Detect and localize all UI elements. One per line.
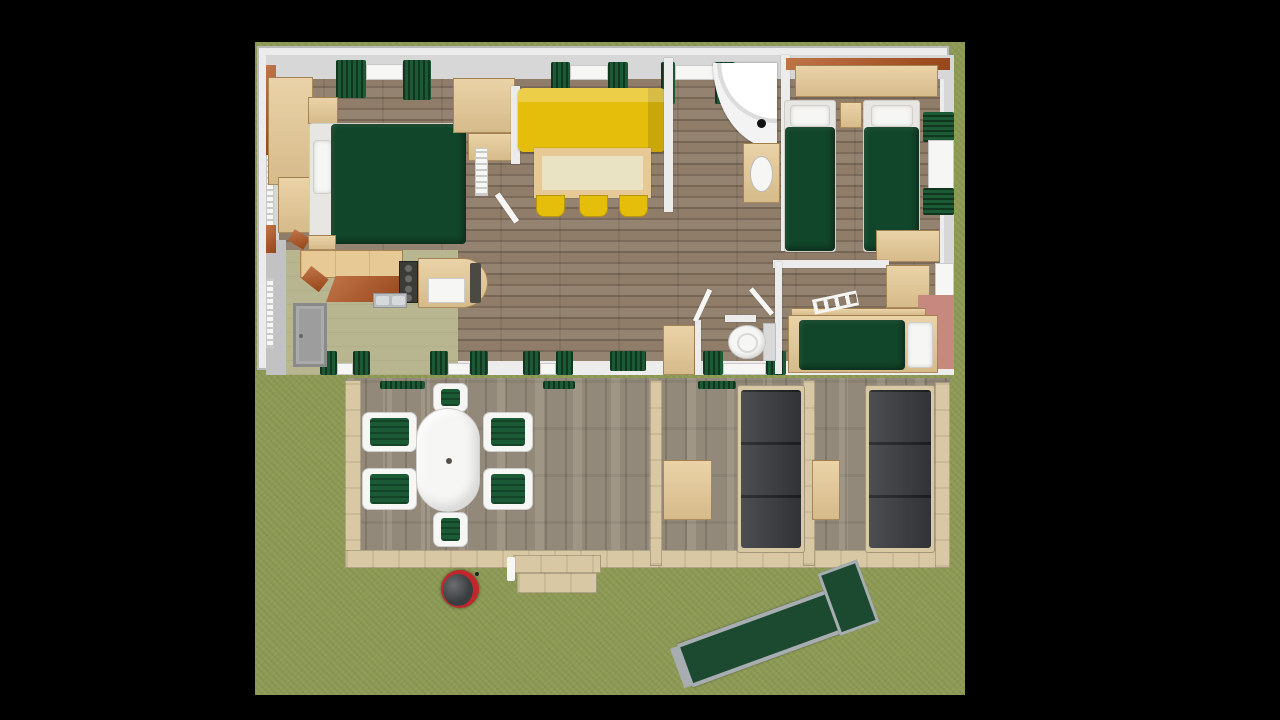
door-knob	[299, 334, 303, 338]
lounge-sofa-1	[737, 385, 805, 553]
open-door-leaf	[495, 192, 519, 223]
sink-bowl	[392, 296, 405, 305]
corner-shower	[713, 63, 777, 149]
double-bed	[309, 123, 465, 243]
letterboxed-render-viewport	[0, 0, 1280, 720]
terrace-chair-left-1	[362, 412, 417, 452]
sofa-cushions	[741, 390, 801, 548]
bed-end-bench	[308, 235, 336, 250]
partition-wall	[773, 260, 889, 268]
lounge-sofa-2	[865, 385, 935, 553]
deck-rail-right	[935, 382, 950, 568]
partition-wall	[664, 58, 673, 212]
lawn	[255, 42, 965, 695]
window-curtain	[336, 60, 366, 98]
window-pane	[337, 363, 353, 375]
terrace-chair-right-1	[483, 412, 533, 452]
window-curtain	[430, 351, 448, 375]
coffee-machine	[470, 263, 481, 303]
bed-pillow	[907, 322, 933, 368]
window-curtain	[403, 60, 431, 100]
shower-drain	[757, 119, 766, 128]
window-pane	[675, 65, 715, 80]
window-curtain	[923, 188, 954, 215]
master-nightstand	[308, 97, 338, 124]
sofa-cushions	[869, 390, 931, 548]
toilet-seat	[737, 333, 758, 353]
chair-cushion	[491, 418, 525, 446]
washbasin	[750, 156, 773, 192]
terrace-chair-right-2	[483, 468, 533, 510]
window-curtain	[610, 351, 646, 371]
facade-curtain-valance	[380, 381, 425, 389]
cabinet-panel	[266, 225, 276, 253]
deck-divider-1	[650, 380, 662, 566]
access-ramp	[677, 579, 873, 688]
yellow-stool	[619, 195, 648, 217]
wc-wall	[695, 320, 701, 375]
yellow-sofa	[518, 88, 666, 152]
yellow-stool	[536, 195, 565, 217]
window-curtain	[923, 112, 954, 142]
washbasin-vanity	[743, 143, 780, 203]
terrace-step-upper	[513, 555, 601, 573]
bed-cover	[785, 127, 835, 251]
terrace-chair-foot	[433, 512, 468, 547]
bed-cover	[799, 320, 905, 370]
corner-desk	[453, 78, 515, 133]
ramp-landing	[817, 560, 879, 636]
barbecue-grill	[441, 570, 479, 608]
partition-wall	[775, 262, 782, 374]
open-door-leaf	[693, 289, 712, 323]
wall-shelf	[795, 65, 938, 97]
master-wardrobe	[268, 77, 313, 185]
coffee-table-2	[812, 460, 840, 520]
fridge-top	[428, 278, 465, 303]
single-bed-1	[784, 100, 836, 252]
bed-pillow	[313, 140, 332, 194]
toilet	[728, 325, 766, 359]
ramp-foot	[670, 645, 694, 688]
window-pane	[570, 65, 608, 80]
chair-cushion	[370, 418, 409, 446]
chair-cushion	[491, 474, 525, 504]
window-curtain	[523, 351, 540, 375]
mobile-home-building	[259, 48, 947, 368]
coffee-table-1	[663, 460, 712, 520]
terrace-chair-left-2	[362, 468, 417, 510]
window-pane	[448, 363, 470, 375]
window-curtain	[353, 351, 370, 375]
window-pane	[540, 363, 556, 375]
chair-cushion	[441, 518, 460, 541]
bed-cover	[331, 124, 466, 244]
dining-table	[534, 148, 651, 198]
parasol-hole	[446, 458, 452, 464]
step-post	[507, 557, 515, 581]
open-door-leaf	[749, 287, 774, 315]
oval-dining-table	[416, 408, 480, 512]
barbecue-handle	[475, 572, 479, 576]
bunk-bed	[788, 315, 938, 373]
wall-radiator	[266, 278, 274, 348]
bed-pillow	[790, 105, 830, 127]
deck-rail-left	[345, 380, 361, 568]
yellow-stool	[579, 195, 608, 217]
sink-bowl	[376, 296, 389, 305]
wc-console	[663, 325, 695, 375]
wc-wall	[725, 315, 756, 322]
bed-pillow	[871, 105, 913, 127]
chair-cushion	[370, 474, 409, 504]
kitchen-counter	[418, 258, 488, 308]
chair-cushion	[441, 389, 460, 406]
facade-curtain-valance	[698, 381, 736, 389]
twin-nightstand	[840, 102, 862, 128]
terrace-deck	[345, 378, 950, 568]
window-curtain	[556, 351, 573, 375]
entry-door	[293, 303, 327, 367]
facade-curtain-valance	[543, 381, 575, 389]
terrace-step-lower	[517, 573, 597, 593]
window-pane	[723, 363, 766, 375]
twin-bedroom-desk	[876, 230, 940, 262]
window-curtain	[703, 351, 723, 375]
barbecue-lid	[443, 574, 473, 606]
window-pane	[928, 140, 954, 190]
window-curtain	[470, 351, 488, 375]
vertical-radiator	[475, 148, 488, 196]
window-pane	[366, 64, 403, 80]
kitchen-sink	[373, 293, 407, 308]
